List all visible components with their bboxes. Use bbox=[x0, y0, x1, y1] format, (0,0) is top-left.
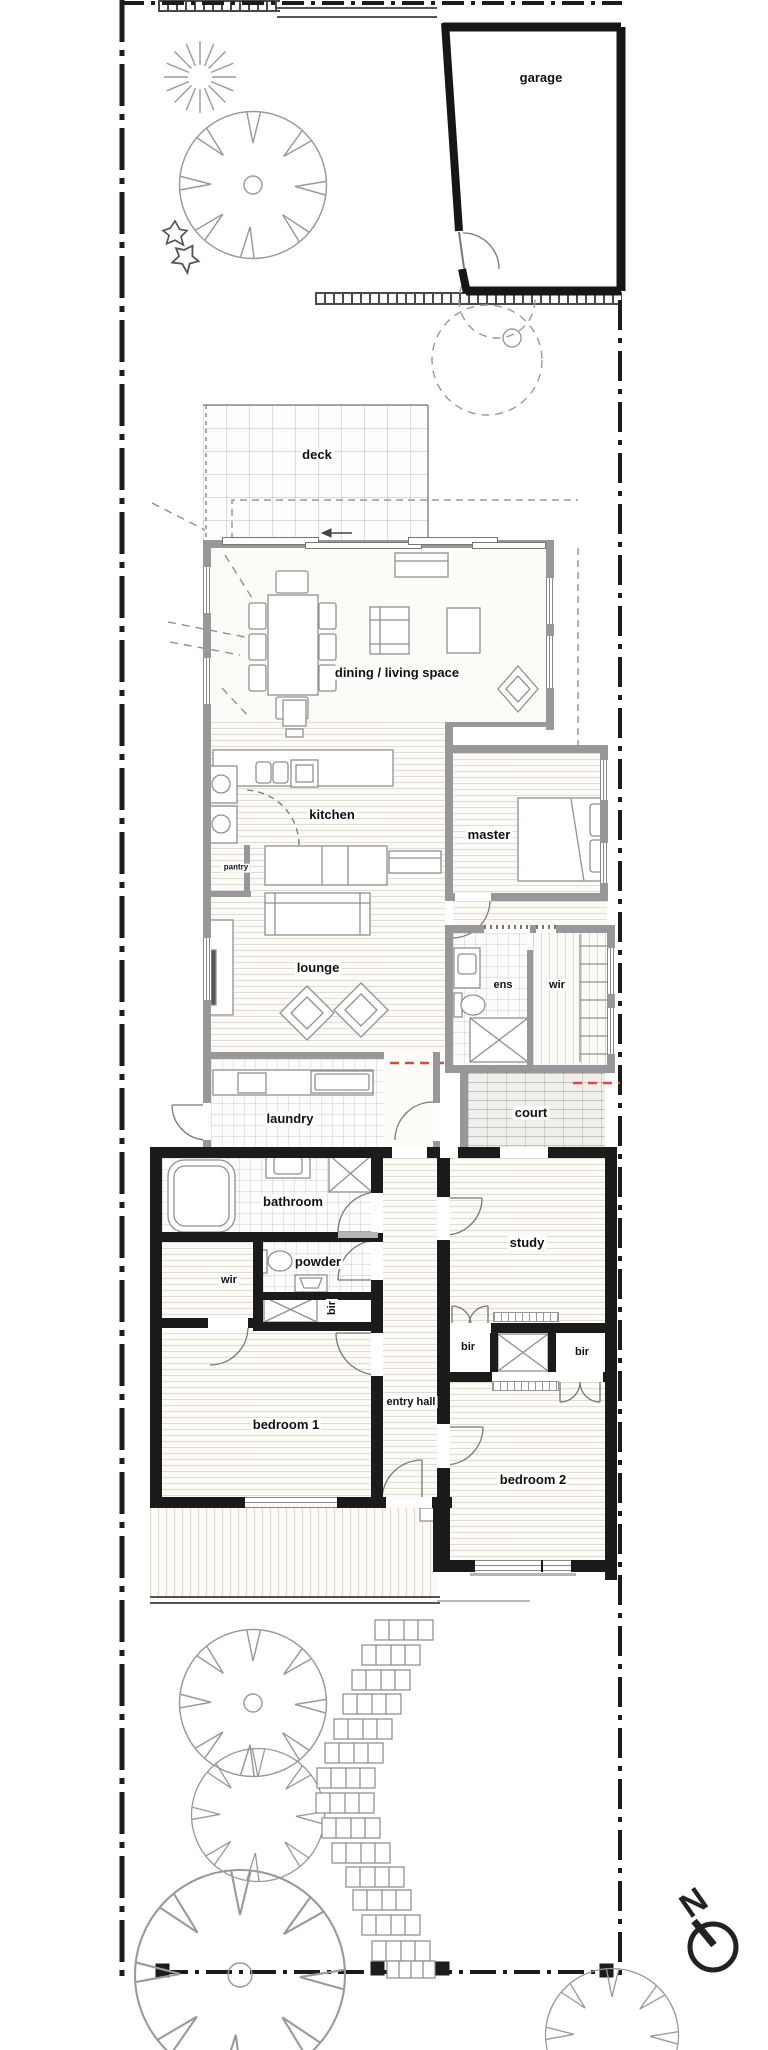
wall-living-east bbox=[546, 540, 554, 730]
door-gap-laundry-west bbox=[203, 1103, 211, 1140]
wall-pantry-south bbox=[203, 891, 251, 897]
window-bedroom1-front bbox=[245, 1497, 337, 1508]
tree-canopies bbox=[135, 41, 679, 2050]
room-label-master: master bbox=[466, 828, 513, 842]
room-label-entry-hall: entry hall bbox=[385, 1396, 438, 1408]
door-gap-passage bbox=[440, 1147, 458, 1158]
door-gap-laundry-east bbox=[433, 1103, 440, 1141]
wall-closet-divider-2 bbox=[548, 1333, 556, 1372]
door-gap-powder bbox=[371, 1242, 383, 1280]
wall-ens-north bbox=[445, 925, 615, 933]
room-label-bir-hall: bir bbox=[326, 1299, 338, 1317]
north-compass: N bbox=[673, 1880, 736, 1970]
paver-path bbox=[316, 1620, 435, 1978]
wall-bedroom2-west bbox=[433, 1497, 445, 1572]
window-west-2 bbox=[203, 658, 211, 704]
sill-bedroom2 bbox=[470, 1573, 576, 1576]
wall-ens-south bbox=[445, 1065, 615, 1073]
window-master-east-1 bbox=[600, 760, 608, 800]
threshold-ens bbox=[484, 925, 530, 929]
opening-bir-study bbox=[450, 1323, 491, 1333]
sliding-door-panel-4 bbox=[472, 542, 546, 549]
window-master-east-2 bbox=[600, 843, 608, 883]
closet-shelf bbox=[492, 1381, 559, 1391]
room-label-bedroom2: bedroom 2 bbox=[498, 1473, 568, 1487]
room-label-wir-master: wir bbox=[547, 979, 567, 991]
door-gap-bathroom bbox=[371, 1193, 383, 1233]
wall-closet-divider-1 bbox=[490, 1333, 498, 1372]
window-west-3 bbox=[203, 938, 211, 1000]
room-label-living: dining / living space bbox=[333, 666, 461, 680]
wall-existing-east bbox=[605, 1158, 617, 1580]
sliding-door-arrow-icon bbox=[322, 529, 352, 537]
sill-bathroom-door bbox=[338, 1232, 378, 1238]
room-label-kitchen: kitchen bbox=[307, 808, 357, 822]
room-label-garage: garage bbox=[518, 71, 565, 85]
starburst-tree-icon bbox=[164, 41, 236, 113]
threshold-wir bbox=[536, 925, 556, 929]
window-bedroom2-front-1 bbox=[475, 1560, 541, 1572]
room-label-powder: powder bbox=[293, 1255, 343, 1269]
study-shelf bbox=[493, 1312, 559, 1322]
room-label-bathroom: bathroom bbox=[261, 1195, 325, 1209]
wall-laundry-north bbox=[203, 1052, 384, 1059]
wall-existing-west bbox=[150, 1158, 162, 1508]
opening-bir-bedroom2 bbox=[558, 1372, 603, 1382]
room-label-pantry: pantry bbox=[222, 864, 250, 873]
deck-edges bbox=[203, 405, 428, 540]
front-door-gap bbox=[386, 1497, 432, 1508]
door-gap-bedroom2 bbox=[437, 1424, 450, 1468]
garage-outline bbox=[443, 23, 621, 293]
window-wir-east-2 bbox=[607, 1008, 615, 1054]
wall-court-west bbox=[460, 1073, 468, 1149]
door-gap-bedroom1 bbox=[371, 1333, 383, 1376]
compass-circle-icon bbox=[690, 1924, 736, 1970]
room-label-bir-right: bir bbox=[573, 1346, 591, 1358]
window-wir-east-1 bbox=[607, 948, 615, 994]
wall-wir-powder-divider bbox=[253, 1242, 263, 1330]
wall-niche bbox=[452, 722, 554, 727]
window-living-east-1 bbox=[546, 578, 554, 624]
room-label-study: study bbox=[508, 1236, 547, 1250]
wall-powder-south bbox=[253, 1292, 381, 1300]
room-label-ens: ens bbox=[492, 979, 515, 991]
furniture bbox=[168, 553, 607, 1601]
wall-master-north bbox=[445, 745, 608, 753]
door-gap-court-study bbox=[500, 1147, 548, 1158]
room-label-laundry: laundry bbox=[265, 1112, 316, 1126]
window-bedroom2-front-2 bbox=[543, 1560, 571, 1572]
room-label-bedroom1: bedroom 1 bbox=[251, 1418, 321, 1432]
pantry-door-swing-dashed bbox=[244, 790, 299, 845]
sliding-door-panel-2 bbox=[305, 542, 422, 549]
room-label-bir-left: bir bbox=[459, 1341, 477, 1353]
door-gap-wir-existing bbox=[208, 1318, 248, 1328]
wall-west bbox=[203, 548, 211, 1152]
door-gap-study bbox=[437, 1197, 450, 1240]
compass-north-letter: N bbox=[673, 1880, 715, 1925]
door-gap-master bbox=[455, 893, 491, 901]
wall-bir-south bbox=[253, 1322, 381, 1331]
floor-plan-canvas: N bbox=[0, 0, 768, 2050]
window-living-east-2 bbox=[546, 636, 554, 688]
wall-ens-west bbox=[445, 933, 453, 1073]
dashed-marks bbox=[152, 503, 252, 718]
window-west-1 bbox=[203, 567, 211, 613]
room-label-deck: deck bbox=[300, 448, 334, 462]
linework-layer: N bbox=[0, 0, 768, 2050]
wall-ens-wir-divider bbox=[527, 950, 533, 1066]
room-label-court: court bbox=[513, 1106, 550, 1120]
room-label-wir-existing: wir bbox=[219, 1274, 239, 1286]
room-label-lounge: lounge bbox=[295, 961, 342, 975]
door-gap-hall-north bbox=[392, 1147, 427, 1158]
